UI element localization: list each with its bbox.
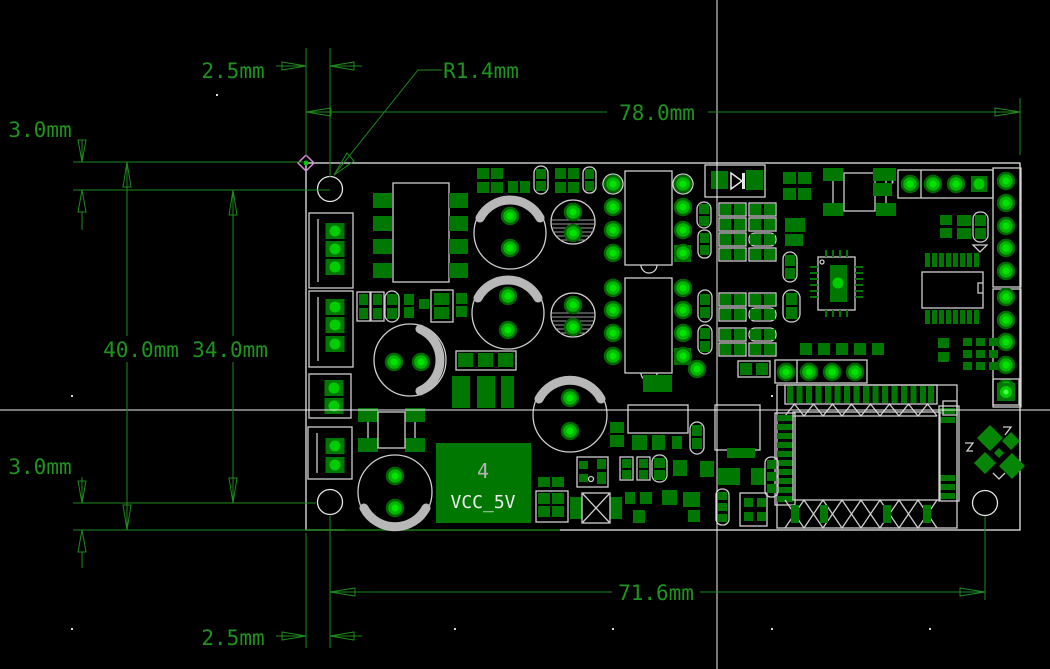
via-pad[interactable] (689, 361, 705, 377)
dip8-footprint-2[interactable] (605, 278, 691, 381)
antenna-pattern[interactable] (965, 425, 1025, 479)
resistor-array[interactable] (456, 351, 516, 370)
module-designator: 4 (477, 459, 489, 483)
dip8-footprint-1[interactable] (603, 171, 693, 273)
dim-hole-span[interactable]: 71.6mm (618, 581, 694, 605)
pin-strip-right-upper[interactable] (993, 168, 1021, 287)
mounting-hole-bottom-left[interactable] (318, 490, 343, 515)
pads-grid-3x3[interactable] (963, 338, 998, 370)
pads-2x2-top[interactable] (783, 172, 811, 200)
triangle-marker (973, 245, 987, 252)
pads-2x2-right[interactable] (938, 338, 949, 362)
dim-board-width[interactable]: 78.0mm (619, 101, 695, 125)
pcb-canvas[interactable]: 4 VCC_5V (0, 0, 1050, 669)
soic8-footprint[interactable] (373, 183, 468, 282)
crystal-footprint-2[interactable] (358, 408, 425, 452)
rf-module-footprint[interactable] (775, 385, 959, 528)
connector-3pin-lower[interactable] (309, 291, 353, 367)
cad-canvas[interactable]: 4 VCC_5V (0, 0, 1050, 669)
header-4pin-top[interactable] (898, 170, 993, 198)
resistor-rows-mid[interactable] (697, 202, 805, 356)
hatched-cap-2[interactable] (551, 293, 595, 337)
dim-top-offset[interactable]: 2.5mm (201, 59, 264, 83)
power-pads[interactable] (452, 376, 514, 408)
diode-symbol-icon (731, 173, 742, 189)
mounting-hole-bottom-right[interactable] (973, 491, 998, 516)
passives-row-midleft[interactable] (357, 290, 467, 322)
hatched-cap-1[interactable] (551, 200, 595, 244)
power-module-pad[interactable]: 4 VCC_5V (436, 443, 531, 523)
connector-3pin-upper[interactable] (309, 213, 353, 288)
pads-pair-top-right[interactable] (873, 168, 892, 196)
connector-2pin-lower[interactable] (308, 427, 352, 479)
module-net-label: VCC_5V (450, 492, 515, 513)
electrolytic-cap-3[interactable] (374, 324, 446, 396)
pads-pair-mid[interactable] (738, 361, 770, 377)
diode-footprint[interactable] (705, 165, 765, 197)
connector-2pin-upper[interactable] (309, 374, 351, 418)
electrolytic-cap-2[interactable] (472, 277, 544, 349)
pads-cluster-right[interactable] (940, 212, 988, 242)
xhatch-component[interactable] (570, 493, 622, 523)
electrolytic-cap-1[interactable] (474, 197, 546, 269)
pcb-board[interactable]: 4 VCC_5V (306, 163, 1025, 530)
passives-bottom-right-of-crosshair[interactable] (715, 405, 778, 526)
pad-under-dip2[interactable] (643, 375, 672, 392)
electrolytic-cap-5[interactable] (358, 455, 432, 529)
dim-overall-height[interactable]: 40.0mm (103, 338, 179, 362)
pads-2x2-bottom[interactable] (536, 491, 568, 522)
dim-inner-height[interactable]: 34.0mm (192, 338, 268, 362)
passives-top-edge[interactable] (477, 166, 596, 194)
pads-pair-bottom[interactable] (538, 477, 564, 487)
header-4pin-mid[interactable] (775, 360, 867, 383)
dim-bottom-margin[interactable]: 3.0mm (8, 455, 71, 479)
crosshair (0, 0, 1050, 669)
mounting-hole-top-left[interactable] (318, 177, 343, 202)
dim-bottom-offset[interactable]: 2.5mm (201, 626, 264, 650)
electrolytic-cap-4[interactable] (533, 378, 607, 452)
sot23-footprint[interactable] (577, 457, 608, 487)
qfp-footprint[interactable] (810, 250, 863, 317)
passives-bottom-middle[interactable] (610, 405, 714, 523)
tssop16-footprint[interactable] (922, 253, 983, 324)
dim-corner-radius[interactable]: R1.4mm (443, 59, 519, 83)
dim-top-margin[interactable]: 3.0mm (8, 118, 71, 142)
pads-row-mid[interactable] (800, 343, 884, 355)
